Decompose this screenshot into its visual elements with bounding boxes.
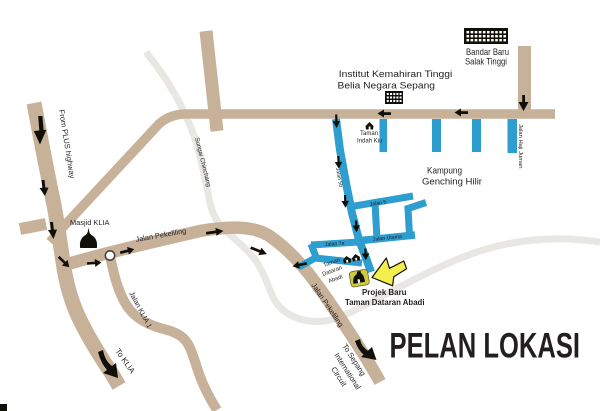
svg-text:Projek Baru: Projek Baru bbox=[362, 287, 407, 297]
svg-text:Belia Negara Sepang: Belia Negara Sepang bbox=[338, 81, 436, 92]
svg-text:Salak Tinggi: Salak Tinggi bbox=[465, 57, 507, 67]
svg-text:Bandar Baru: Bandar Baru bbox=[466, 47, 509, 57]
svg-text:Institut Kemahiran Tinggi: Institut Kemahiran Tinggi bbox=[339, 69, 453, 80]
svg-text:Jalan Haji Juman: Jalan Haji Juman bbox=[517, 124, 523, 168]
svg-text:Abadi: Abadi bbox=[328, 274, 344, 285]
svg-text:Masjid KLIA: Masjid KLIA bbox=[70, 218, 110, 227]
svg-text:Indah Kiu: Indah Kiu bbox=[357, 139, 382, 145]
svg-text:Jalan 5: Jalan 5 bbox=[369, 199, 387, 208]
svg-text:Taman: Taman bbox=[360, 131, 378, 137]
svg-text:Genching Hilir: Genching Hilir bbox=[422, 177, 482, 187]
svg-text:Taman Dataran Abadi: Taman Dataran Abadi bbox=[345, 297, 425, 307]
svg-text:PELAN LOKASI: PELAN LOKASI bbox=[390, 327, 581, 366]
svg-text:Jalan 7a: Jalan 7a bbox=[325, 241, 345, 248]
svg-text:Kampung: Kampung bbox=[427, 166, 462, 176]
svg-text:From PLUS highway: From PLUS highway bbox=[57, 109, 77, 179]
